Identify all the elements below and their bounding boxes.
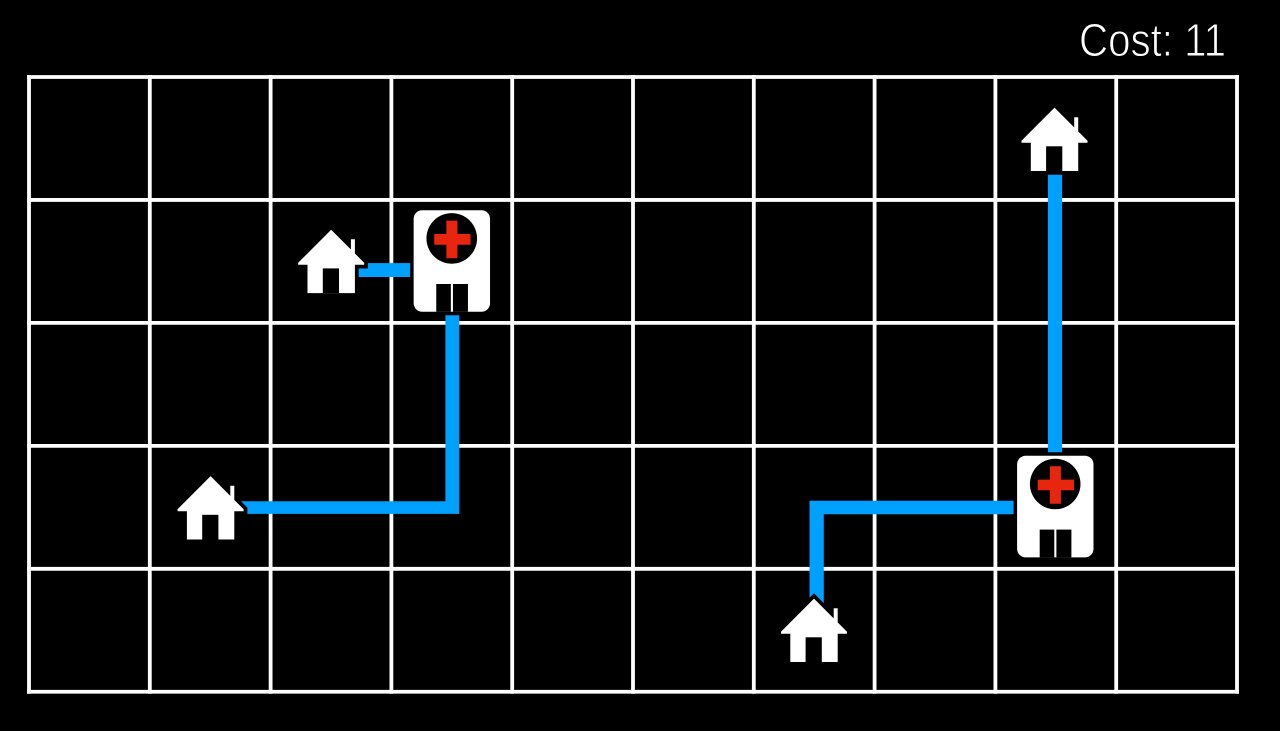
svg-text:Cost: 11: Cost: 11 (1079, 14, 1226, 66)
